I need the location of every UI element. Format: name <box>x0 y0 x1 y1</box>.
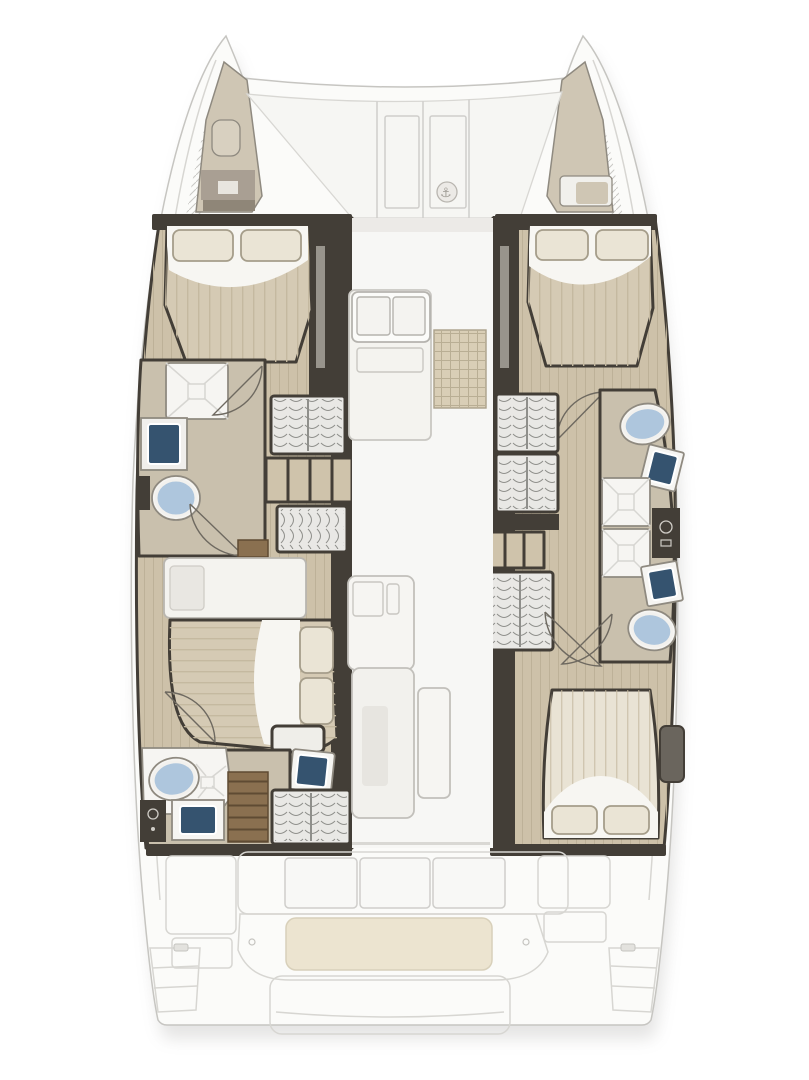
starboard-shelf-band <box>483 514 559 530</box>
catamaran-floorplan-svg: ⚓ <box>0 0 809 1080</box>
starboard-shelves <box>486 532 544 568</box>
port-aft-bulkhead <box>146 844 352 856</box>
bathroom-cabinet <box>140 800 166 842</box>
salon <box>348 218 493 848</box>
salon-door-panel <box>418 688 450 798</box>
cockpit-bench-cushion <box>286 918 492 970</box>
transom-cleat <box>621 944 635 951</box>
starboard-nightstand <box>660 726 684 782</box>
starboard-forward-bed <box>528 226 653 366</box>
shower <box>166 363 228 419</box>
port-hanging-locker <box>271 396 345 454</box>
pillow <box>552 806 597 834</box>
port-hanging-locker <box>277 506 347 552</box>
port-hull <box>136 214 352 856</box>
chart-table <box>348 576 414 670</box>
companionway-step <box>238 540 268 557</box>
port-aft-hanging-locker <box>272 790 350 844</box>
pillow <box>536 230 588 260</box>
pillow <box>173 230 233 261</box>
galley-counter <box>349 290 431 440</box>
starboard-hanging-locker <box>487 572 553 650</box>
starboard-aft-bed <box>543 690 658 838</box>
port-forward-bathroom <box>137 360 265 556</box>
port-forward-bed <box>165 226 312 362</box>
seatback-panel <box>360 858 430 908</box>
port-nightstand <box>272 726 324 752</box>
starboard-hull <box>483 214 684 856</box>
seatback-panel <box>433 858 505 908</box>
port-vanity-desk <box>164 558 306 618</box>
transom-cleat <box>174 944 188 951</box>
galley-stove-mat <box>434 330 486 408</box>
port-forepeak-hatch <box>212 120 240 156</box>
bathroom-cabinet <box>652 508 680 558</box>
hull-fitting <box>137 476 150 510</box>
starboard-hanging-locker <box>496 454 558 512</box>
seatback-panel <box>285 858 357 908</box>
galley-sink <box>352 292 430 342</box>
starboard-hanging-locker <box>496 394 558 452</box>
sink <box>641 561 683 607</box>
shower <box>602 478 650 526</box>
floorplan-image: ⚓ <box>0 0 809 1080</box>
port-forward-cabin <box>165 226 312 362</box>
sink <box>141 418 187 470</box>
port-vanity-sink <box>289 749 335 793</box>
sink <box>172 800 224 840</box>
pillow <box>596 230 648 260</box>
pillow <box>300 627 333 673</box>
port-shelves <box>266 458 352 502</box>
pillow <box>241 230 301 261</box>
pillow <box>604 806 649 834</box>
toilet <box>152 476 200 520</box>
starboard-aft-bulkhead <box>490 844 666 856</box>
salon-sofa <box>352 668 414 818</box>
pillow <box>300 678 333 724</box>
anchor-icon: ⚓ <box>440 186 452 201</box>
